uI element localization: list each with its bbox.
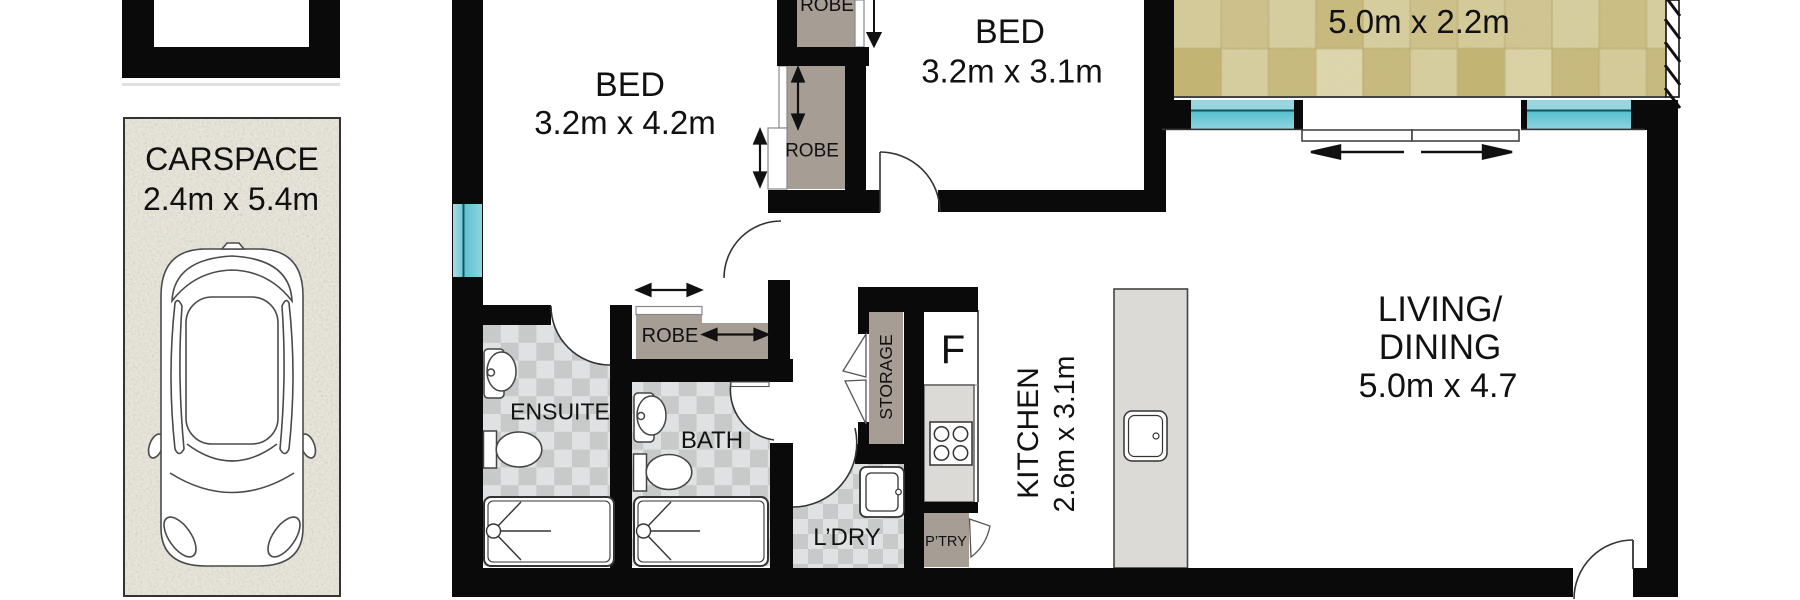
svg-text:3.2m x 3.1m: 3.2m x 3.1m <box>921 53 1103 90</box>
svg-text:F: F <box>941 328 965 372</box>
svg-text:5.0m x 4.7: 5.0m x 4.7 <box>1359 367 1518 405</box>
svg-text:KITCHEN: KITCHEN <box>1012 367 1045 499</box>
svg-text:5.0m x 2.2m: 5.0m x 2.2m <box>1328 3 1510 40</box>
svg-text:2.4m x 5.4m: 2.4m x 5.4m <box>143 181 319 217</box>
svg-text:DINING: DINING <box>1379 328 1502 367</box>
svg-text:BED: BED <box>595 66 665 104</box>
svg-text:3.2m x 4.2m: 3.2m x 4.2m <box>534 104 716 141</box>
svg-text:ROBE: ROBE <box>642 325 699 347</box>
svg-text:STORAGE: STORAGE <box>876 334 896 419</box>
svg-text:ROBE: ROBE <box>785 141 839 162</box>
svg-text:L’DRY: L’DRY <box>813 524 881 551</box>
svg-text:BED: BED <box>975 13 1045 51</box>
svg-text:ROBE: ROBE <box>800 0 854 16</box>
svg-text:BATH: BATH <box>681 427 743 454</box>
svg-text:CARSPACE: CARSPACE <box>145 141 319 177</box>
svg-text:LIVING/: LIVING/ <box>1378 290 1503 329</box>
svg-text:2.6m x 3.1m: 2.6m x 3.1m <box>1049 356 1081 513</box>
svg-text:P’TRY: P’TRY <box>925 534 967 550</box>
svg-text:ENSUITE: ENSUITE <box>510 399 610 425</box>
